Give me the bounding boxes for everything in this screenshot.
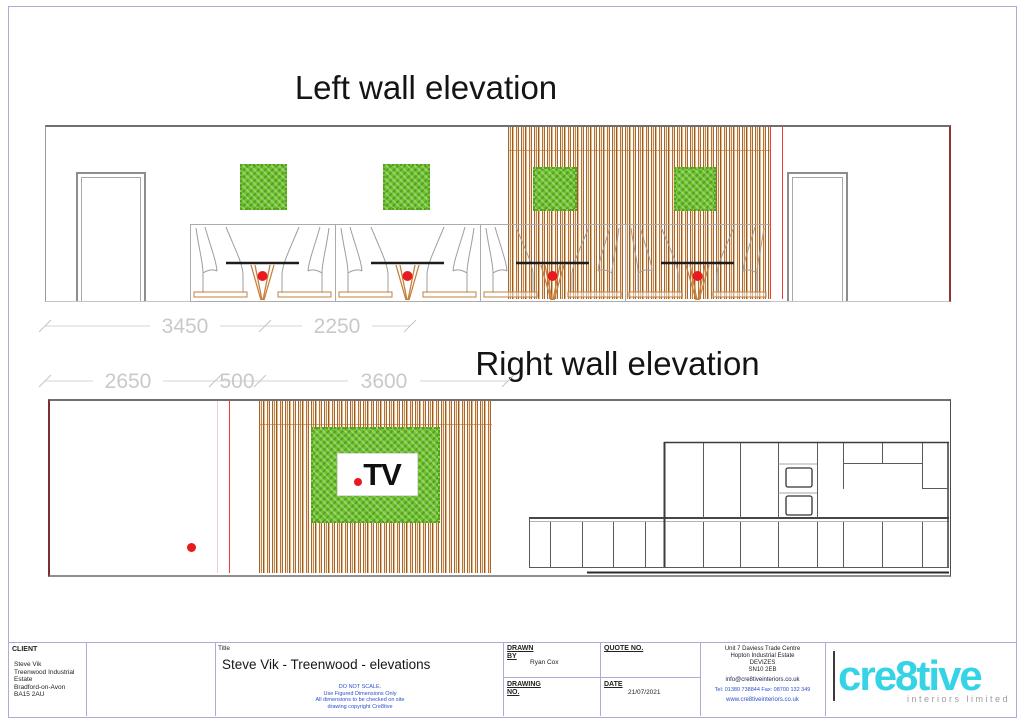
dimension-2650: 2650 xyxy=(93,371,163,393)
logo-bar xyxy=(833,651,835,701)
moss-panel-3 xyxy=(533,167,577,211)
date-value: 21/07/2021 xyxy=(628,689,661,697)
drawing-sheet: Left wall elevation xyxy=(0,0,1024,719)
quote-no-label: QUOTE NO. xyxy=(604,645,644,653)
title-block-divider xyxy=(825,642,826,716)
title-block-divider xyxy=(86,642,87,716)
kitchen-cabinetry xyxy=(527,440,951,576)
company-logo: cre8tive xyxy=(838,655,981,697)
moss-panel-1 xyxy=(240,164,287,210)
moss-panel-4 xyxy=(674,167,716,211)
dimension-3600: 3600 xyxy=(348,371,420,393)
setting-out-line-red xyxy=(782,127,783,299)
company-email: info@cre8tiveinteriors.co.uk xyxy=(702,677,823,684)
company-address: Unit 7 Daviess Trade Centre Hopton Indus… xyxy=(702,646,823,674)
disclaimer-note: DO NOT SCALE. Use Figured Dimensions Onl… xyxy=(260,684,460,710)
client-address: Steve Vik Treenwood Industrial Estate Br… xyxy=(14,661,84,699)
dimension-2250: 2250 xyxy=(302,316,372,338)
door-right-frame xyxy=(792,177,843,301)
door-left-frame xyxy=(81,177,141,301)
door-left xyxy=(76,172,146,301)
dimension-500: 500 xyxy=(214,371,260,393)
drawn-by-value: Ryan Cox xyxy=(530,659,559,667)
title-label: Title xyxy=(218,645,230,653)
title-block-divider xyxy=(503,642,504,716)
drawing-no-label: DRAWING NO. xyxy=(507,681,551,697)
door-right xyxy=(787,172,848,301)
title-block-divider xyxy=(700,642,701,716)
tv-logo-text: TV xyxy=(363,459,401,490)
company-logo-tagline: interiors limited xyxy=(898,694,1010,704)
slat-rail xyxy=(508,150,770,151)
slat-rail xyxy=(259,424,492,425)
title-block-mid-divider xyxy=(503,677,700,678)
date-label: DATE xyxy=(604,681,623,689)
left-elevation-title: Left wall elevation xyxy=(251,70,601,106)
setting-out-line-red xyxy=(770,127,771,299)
socket-marker-dot xyxy=(187,543,196,552)
tv-logo-dot xyxy=(354,478,362,486)
title-block-top-border xyxy=(8,642,1016,643)
tv-screen: TV xyxy=(337,453,418,496)
dimension-3450: 3450 xyxy=(150,316,220,338)
drawing-title: Steve Vik - Treenwood - elevations xyxy=(222,657,430,672)
moss-panel-2 xyxy=(383,164,430,210)
title-block-divider xyxy=(600,642,601,716)
setting-out-line-red xyxy=(229,401,230,573)
company-website: www.cre8tiveinteriors.co.uk xyxy=(702,697,823,704)
company-phone: Tel: 01380 738844 Fax: 08700 132 349 xyxy=(702,687,823,694)
client-label: CLIENT xyxy=(12,646,37,654)
title-block-divider xyxy=(215,642,216,716)
setting-out-line-pink xyxy=(217,401,218,573)
booth-seating-row xyxy=(190,224,770,302)
